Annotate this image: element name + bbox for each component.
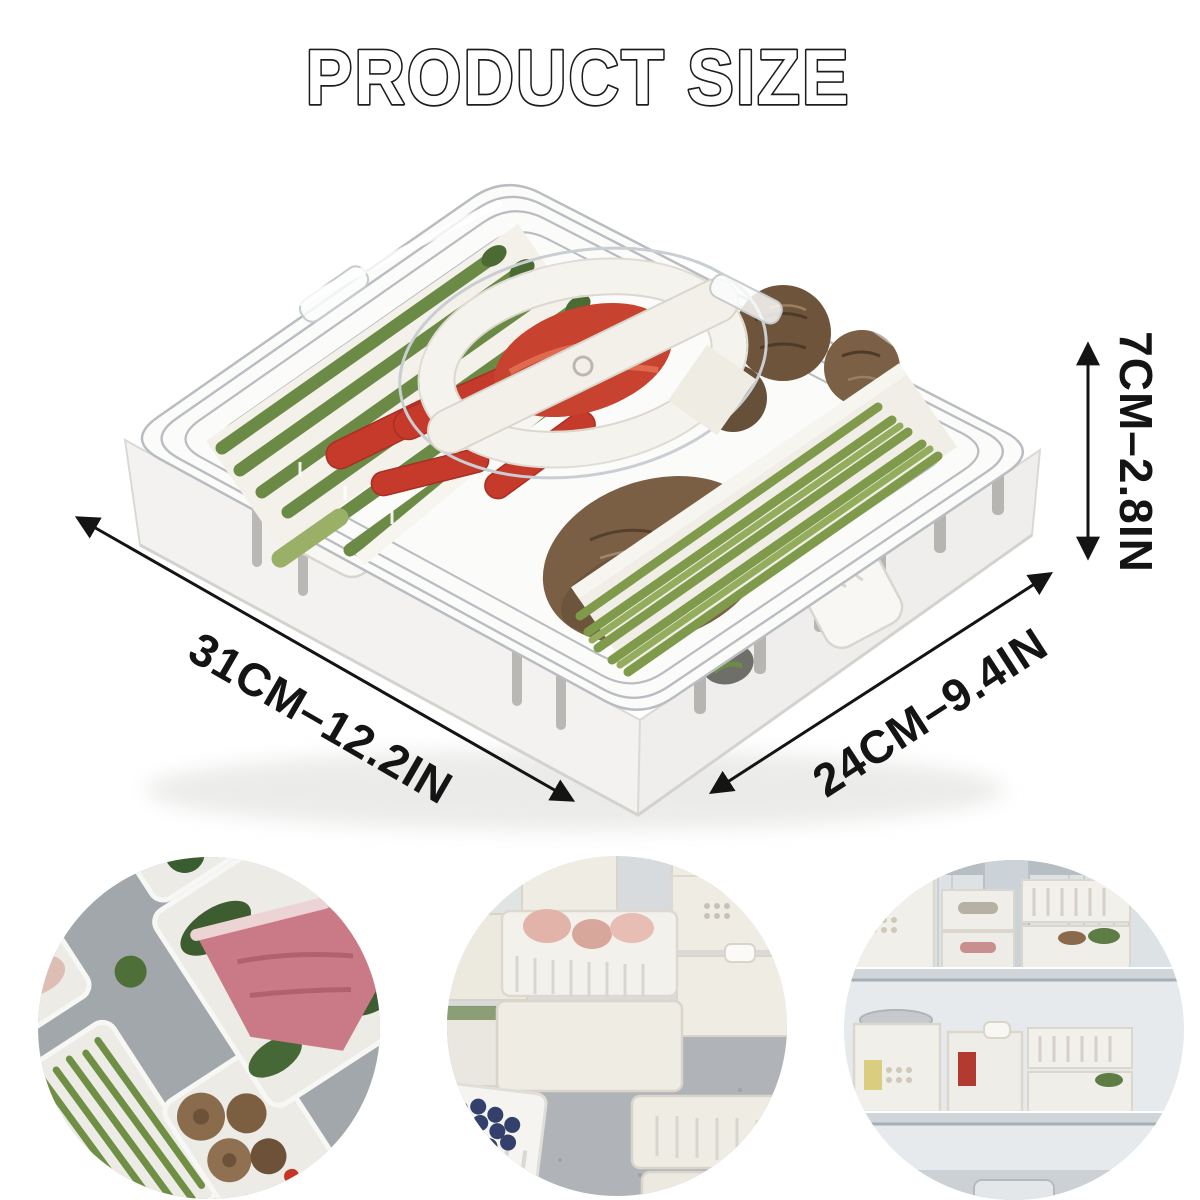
fish: [0, 1196, 36, 1200]
page-title: PRODUCT SIZE: [306, 33, 851, 121]
vent-box: [522, 821, 617, 921]
handle-ring-small: [391, 882, 443, 934]
fridge-shelf: [839, 1112, 1189, 1124]
height-dimension-label: 7CM–2.8IN: [1110, 331, 1162, 573]
stacked-box: [497, 1001, 682, 1091]
product-size-infographic-page: PRODUCT SIZE: [0, 0, 1200, 1200]
red-contents: [958, 1052, 976, 1086]
front-stack: [632, 1096, 827, 1200]
handle-slot: [958, 902, 998, 914]
fridge-shelf: [839, 968, 1189, 980]
chicken-basket: [502, 909, 677, 996]
red-currants: [367, 1087, 435, 1160]
infographic-canvas: PRODUCT SIZE: [0, 0, 1200, 1200]
mid-right-box: [677, 956, 792, 1036]
pumpkin-box: [672, 820, 802, 951]
photo-circle-stack: [347, 820, 827, 1200]
photo-circle-fridge: [839, 855, 1189, 1200]
height-dimension: 7CM–2.8IN: [1088, 331, 1162, 573]
